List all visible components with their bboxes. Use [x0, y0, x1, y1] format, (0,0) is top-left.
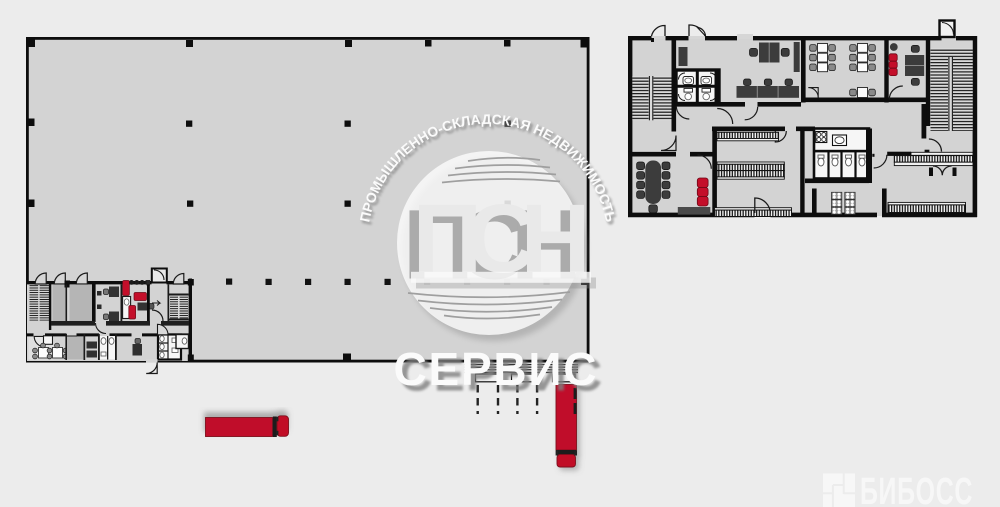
- svg-text:СЕРВИС: СЕРВИС: [394, 343, 597, 395]
- svg-text:БИБОСС: БИБОСС: [860, 471, 973, 507]
